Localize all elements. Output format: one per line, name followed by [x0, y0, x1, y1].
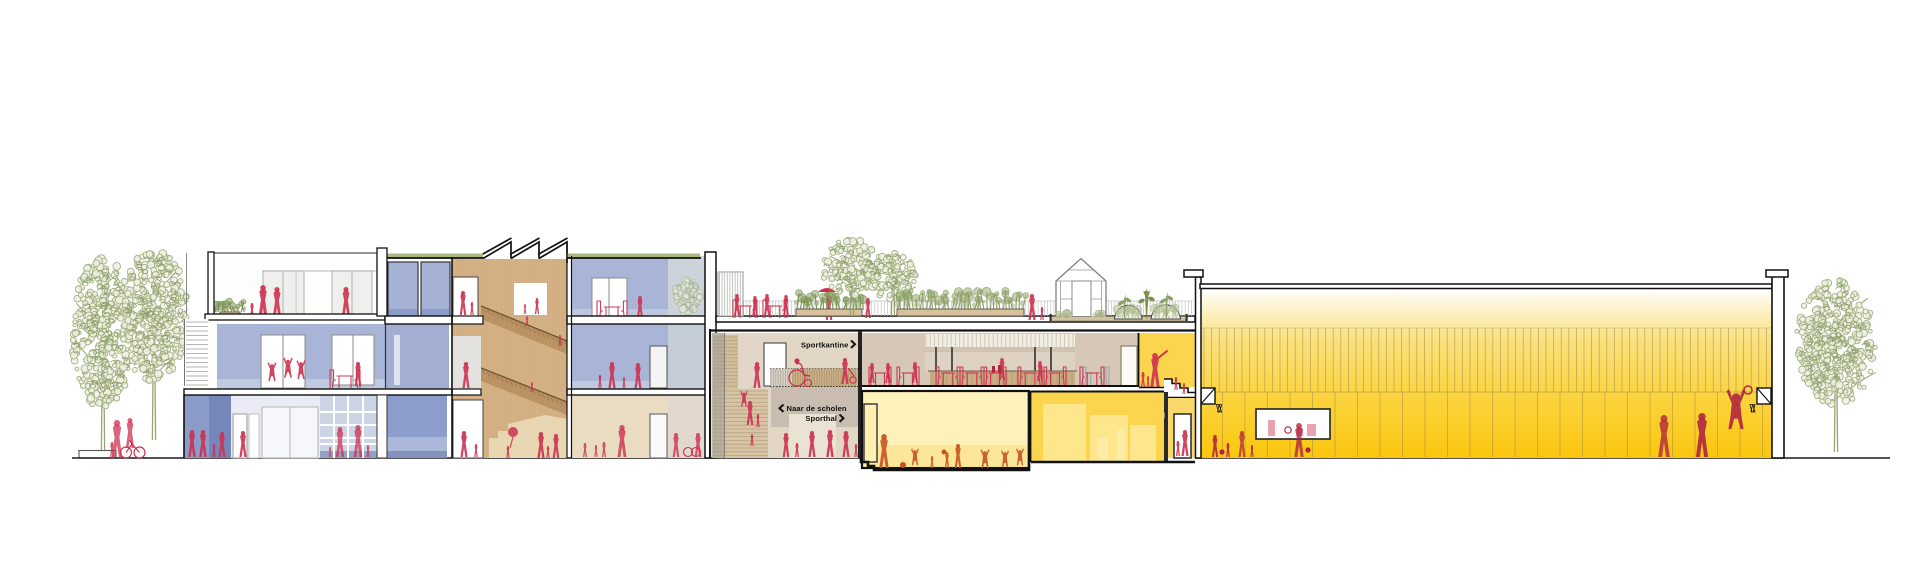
svg-text:Sporthal: Sporthal [805, 414, 837, 423]
svg-text:Naar de scholen: Naar de scholen [787, 404, 847, 413]
svg-text:Sportkantine: Sportkantine [801, 340, 849, 349]
